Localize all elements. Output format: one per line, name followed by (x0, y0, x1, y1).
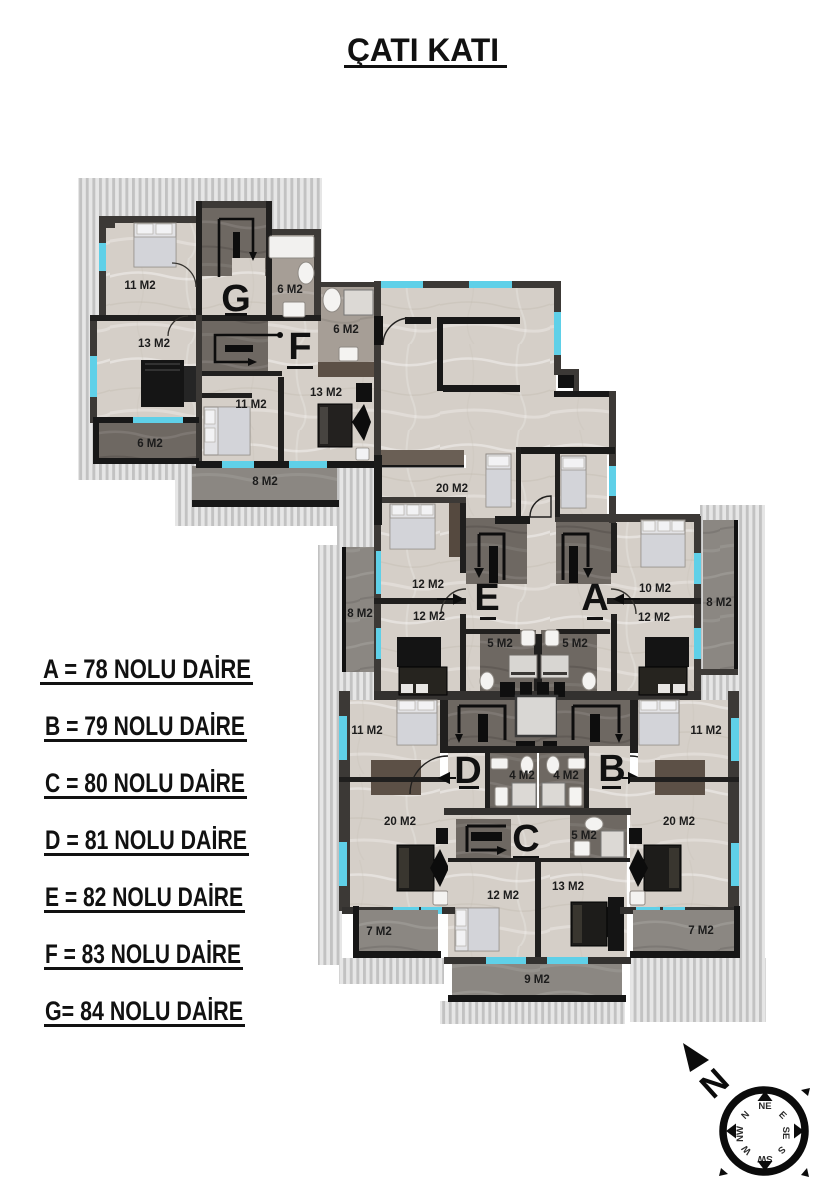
svg-text:6 M2: 6 M2 (277, 284, 303, 296)
svg-text:9 M2: 9 M2 (524, 974, 550, 986)
svg-text:13 M2: 13 M2 (138, 338, 170, 350)
svg-text:6 M2: 6 M2 (333, 324, 359, 336)
svg-text:A = 78 NOLU DAİRE: A = 78 NOLU DAİRE (43, 654, 251, 684)
svg-text:G= 84 NOLU DAİRE: G= 84 NOLU DAİRE (45, 996, 243, 1026)
svg-text:F = 83 NOLU DAİRE: F = 83 NOLU DAİRE (45, 939, 241, 969)
svg-text:8 M2: 8 M2 (706, 597, 732, 609)
svg-text:11 M2: 11 M2 (235, 399, 266, 411)
svg-text:11 M2: 11 M2 (351, 725, 382, 737)
svg-text:D = 81 NOLU DAİRE: D = 81 NOLU DAİRE (45, 825, 247, 855)
svg-text:7 M2: 7 M2 (688, 925, 714, 937)
svg-text:12 M2: 12 M2 (413, 611, 445, 623)
svg-text:SE: SE (780, 1127, 791, 1140)
svg-text:20 M2: 20 M2 (384, 816, 416, 828)
svg-text:13 M2: 13 M2 (552, 881, 584, 893)
svg-text:5 M2: 5 M2 (562, 638, 588, 650)
svg-text:12 M2: 12 M2 (638, 612, 670, 624)
svg-text:10 M2: 10 M2 (639, 583, 671, 595)
svg-text:12 M2: 12 M2 (487, 890, 519, 902)
svg-text:C: C (512, 818, 539, 860)
svg-text:5 M2: 5 M2 (571, 830, 597, 842)
svg-text:20 M2: 20 M2 (436, 483, 468, 495)
svg-text:C = 80 NOLU DAİRE: C = 80 NOLU DAİRE (45, 768, 245, 798)
svg-text:11 M2: 11 M2 (690, 725, 721, 737)
svg-text:6 M2: 6 M2 (137, 438, 163, 450)
svg-text:20 M2: 20 M2 (663, 816, 695, 828)
svg-text:8 M2: 8 M2 (347, 608, 373, 620)
svg-text:8 M2: 8 M2 (252, 476, 278, 488)
svg-text:E = 82 NOLU DAİRE: E = 82 NOLU DAİRE (45, 882, 243, 912)
svg-text:NE: NE (758, 1101, 771, 1112)
svg-text:E: E (474, 577, 499, 619)
svg-text:D: D (454, 750, 481, 792)
svg-text:7 M2: 7 M2 (366, 926, 392, 938)
svg-text:ÇATI KATI: ÇATI KATI (347, 32, 499, 68)
svg-text:4 M2: 4 M2 (553, 770, 579, 782)
svg-text:A: A (581, 577, 608, 619)
svg-text:13 M2: 13 M2 (310, 387, 342, 399)
svg-text:B = 79 NOLU DAİRE: B = 79 NOLU DAİRE (45, 711, 245, 741)
svg-text:5 M2: 5 M2 (487, 638, 513, 650)
svg-text:B: B (598, 748, 625, 790)
svg-text:12 M2: 12 M2 (412, 579, 444, 591)
svg-text:11 M2: 11 M2 (124, 280, 155, 292)
svg-text:F: F (288, 326, 311, 368)
svg-text:4 M2: 4 M2 (509, 770, 535, 782)
svg-text:NW: NW (735, 1126, 746, 1142)
